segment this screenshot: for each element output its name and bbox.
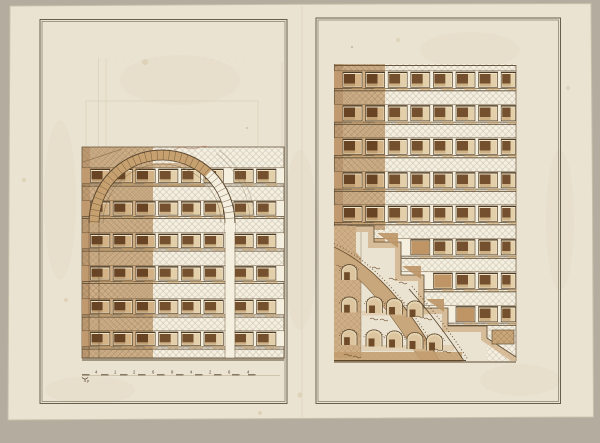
- svg-text:5 p: 5 p: [84, 379, 89, 383]
